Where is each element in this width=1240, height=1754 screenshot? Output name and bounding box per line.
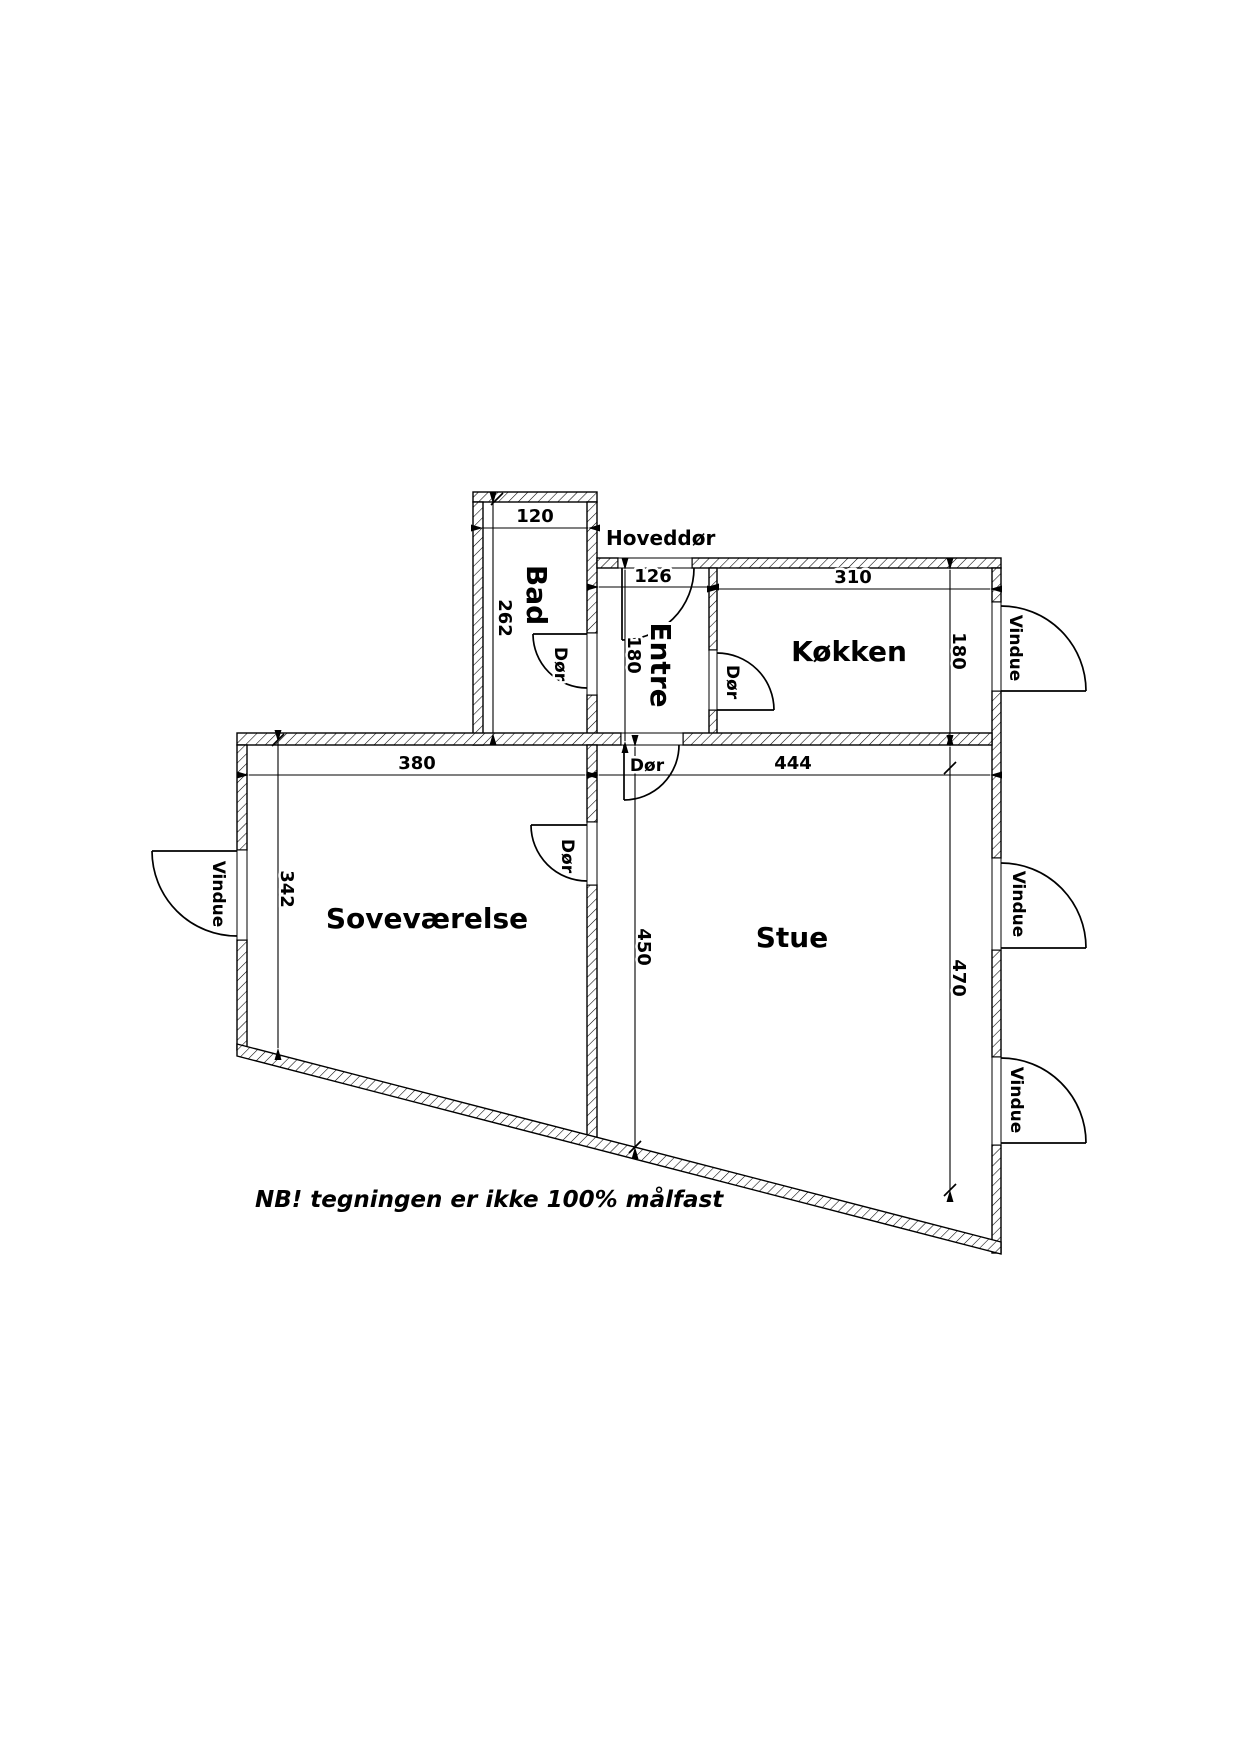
- entre-koekken-door-label: Dør: [722, 665, 742, 700]
- scale-disclaimer-note: NB! tegningen er ikke 100% målfast: [255, 1186, 724, 1213]
- wall-bad-top: [473, 492, 597, 502]
- sovevaerelse-door-opening: [587, 822, 597, 885]
- wall-bad-right-upper: [587, 502, 597, 633]
- main-door-label: Hoveddør: [606, 526, 715, 550]
- stue-window2-opening: [992, 1057, 1001, 1145]
- wall-bad-left: [473, 502, 483, 745]
- wall-right-d: [992, 1145, 1001, 1253]
- koekken-window-label: Vindue: [1005, 615, 1025, 682]
- door-swings: [152, 568, 1086, 1143]
- koekken-window-opening: [992, 602, 1001, 691]
- sovevaerelse-window-opening: [237, 850, 247, 940]
- dim-koekken-width: 310: [834, 567, 872, 588]
- bad-door-opening: [587, 633, 597, 695]
- dim-koekken-depth: 180: [948, 632, 969, 670]
- room-label-stue: Stue: [756, 921, 828, 954]
- dim-bad-depth: 262: [494, 599, 515, 637]
- room-label-bad: Bad: [520, 565, 553, 625]
- floor-plan: 120 262 126 310 180 180 380 444 342 450 …: [0, 0, 1240, 1754]
- wall-entre-top-left: [597, 558, 618, 568]
- wall-left-upper: [237, 745, 247, 850]
- wall-divider-lower: [587, 885, 597, 1138]
- sovevaerelse-door-label: Dør: [557, 839, 577, 874]
- wall-entre-right-lower: [709, 710, 717, 735]
- stue-window1-opening: [992, 858, 1001, 950]
- wall-main-left: [237, 733, 621, 745]
- wall-left-lower: [237, 940, 247, 1050]
- entre-koekken-door-opening: [709, 650, 717, 710]
- stue-window1-label: Vindue: [1008, 871, 1028, 938]
- dim-entre-width: 126: [634, 566, 672, 587]
- room-label-koekken: Køkken: [791, 635, 907, 668]
- wall-right-c: [992, 950, 1001, 1057]
- bad-door-label: Dør: [550, 647, 570, 682]
- dim-sovevaerelse-width: 380: [398, 753, 436, 774]
- dim-bad-width: 120: [516, 506, 554, 527]
- sovevaerelse-window-label: Vindue: [208, 861, 228, 928]
- dimension-lines: [249, 493, 990, 1196]
- wall-divider-upper: [587, 745, 597, 822]
- wall-right-a: [992, 568, 1001, 602]
- dim-entre-depth: 180: [623, 636, 644, 674]
- wall-slanted-bottom: [237, 1044, 1001, 1254]
- dim-stue-width: 444: [774, 753, 812, 774]
- room-labels: Bad Entre Køkken Soveværelse Stue Hovedd…: [208, 526, 1028, 1213]
- wall-bad-right-lower: [587, 695, 597, 735]
- walls: [237, 492, 1001, 1254]
- room-label-sovevaerelse: Soveværelse: [326, 902, 528, 935]
- wall-right-b: [992, 691, 1001, 858]
- wall-entre-right-upper: [709, 568, 717, 650]
- stue-window2-label: Vindue: [1006, 1067, 1026, 1134]
- room-label-entre: Entre: [644, 622, 677, 707]
- wall-main-right: [683, 733, 992, 745]
- dim-sovevaerelse-depth: 342: [276, 870, 297, 908]
- dim-stue-depth-left: 450: [633, 928, 654, 966]
- entre-stue-door-label: Dør: [630, 756, 665, 776]
- dim-stue-depth-right: 470: [948, 959, 969, 997]
- entre-stue-door-opening: [621, 733, 683, 745]
